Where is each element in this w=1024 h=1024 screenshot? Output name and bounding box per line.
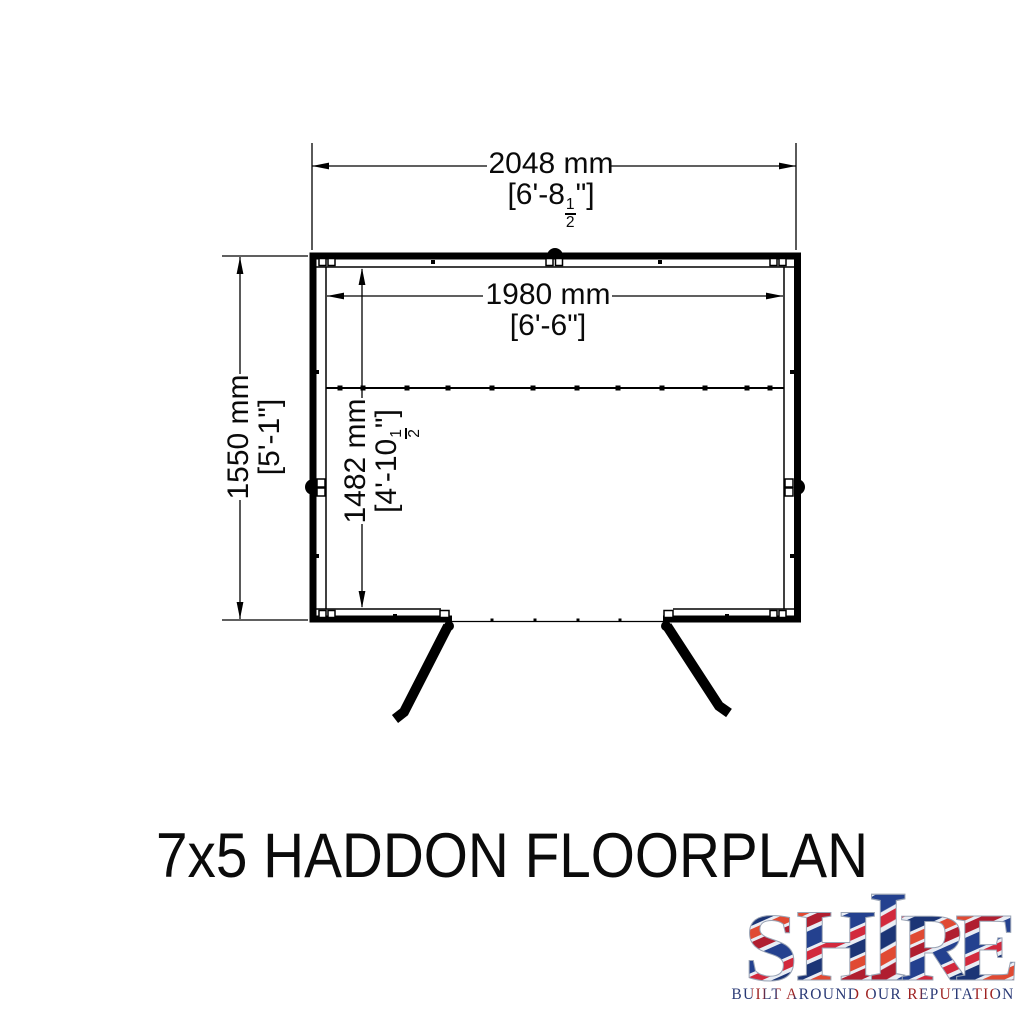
arrow-up bbox=[237, 257, 244, 274]
door-leaf-right bbox=[667, 626, 729, 713]
arrow-right bbox=[779, 163, 796, 170]
bump-right bbox=[797, 479, 805, 495]
door-threshold bbox=[452, 619, 663, 622]
label-outer-depth: 1550 mm [5'-1"] bbox=[223, 357, 289, 517]
outer-depth-metric: 1550 mm bbox=[223, 357, 254, 517]
outer-depth-imperial: [5'-1"] bbox=[254, 357, 285, 517]
outer-width-metric: 2048 mm bbox=[451, 148, 651, 179]
fraction: 12 bbox=[565, 197, 576, 231]
arrow-up bbox=[359, 268, 366, 285]
inner-depth-metric: 1482 mm bbox=[340, 381, 371, 541]
logo-tagline: BUILT AROUND OUR REPUTATION bbox=[722, 986, 1024, 1004]
inner-width-imperial: [6'-6"] bbox=[448, 310, 648, 341]
bump-top-center bbox=[547, 248, 563, 256]
arrow-left bbox=[327, 293, 344, 300]
label-inner-width: 1980 mm [6'-6"] bbox=[448, 279, 648, 341]
outer-width-imperial: [6'-812"] bbox=[451, 179, 651, 231]
door-jamb-left bbox=[440, 611, 449, 618]
doors bbox=[395, 621, 729, 719]
arrow-right bbox=[766, 293, 783, 300]
arrow-down bbox=[237, 602, 244, 619]
label-outer-width: 2048 mm [6'-812"] bbox=[451, 148, 651, 231]
logo-letter-s: S bbox=[744, 894, 798, 1001]
arrow-down bbox=[359, 591, 366, 608]
label-inner-depth: 1482 mm [4'-1012"] bbox=[340, 381, 406, 541]
door-leaf-left bbox=[395, 626, 448, 719]
fraction: 12 bbox=[389, 428, 423, 439]
inner-width-metric: 1980 mm bbox=[448, 279, 648, 310]
logo-letter-e: E bbox=[955, 894, 1020, 1001]
floorplan-page: 2048 mm [6'-812"] 1980 mm [6'-6"] 1550 m… bbox=[0, 0, 1024, 1024]
bump-left bbox=[305, 479, 313, 495]
inner-depth-imperial: [4'-1012"] bbox=[371, 381, 423, 541]
arrow-left bbox=[312, 163, 329, 170]
door-jamb-right bbox=[664, 611, 673, 618]
